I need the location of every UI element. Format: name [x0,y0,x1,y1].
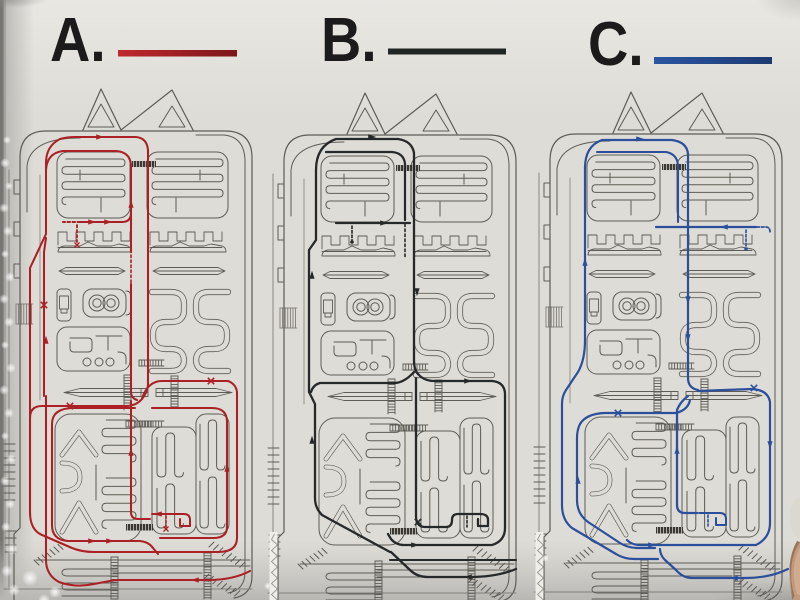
svg-text:B.: B. [321,6,377,74]
svg-text:C.: C. [588,10,644,78]
svg-text:A.: A. [50,6,106,74]
